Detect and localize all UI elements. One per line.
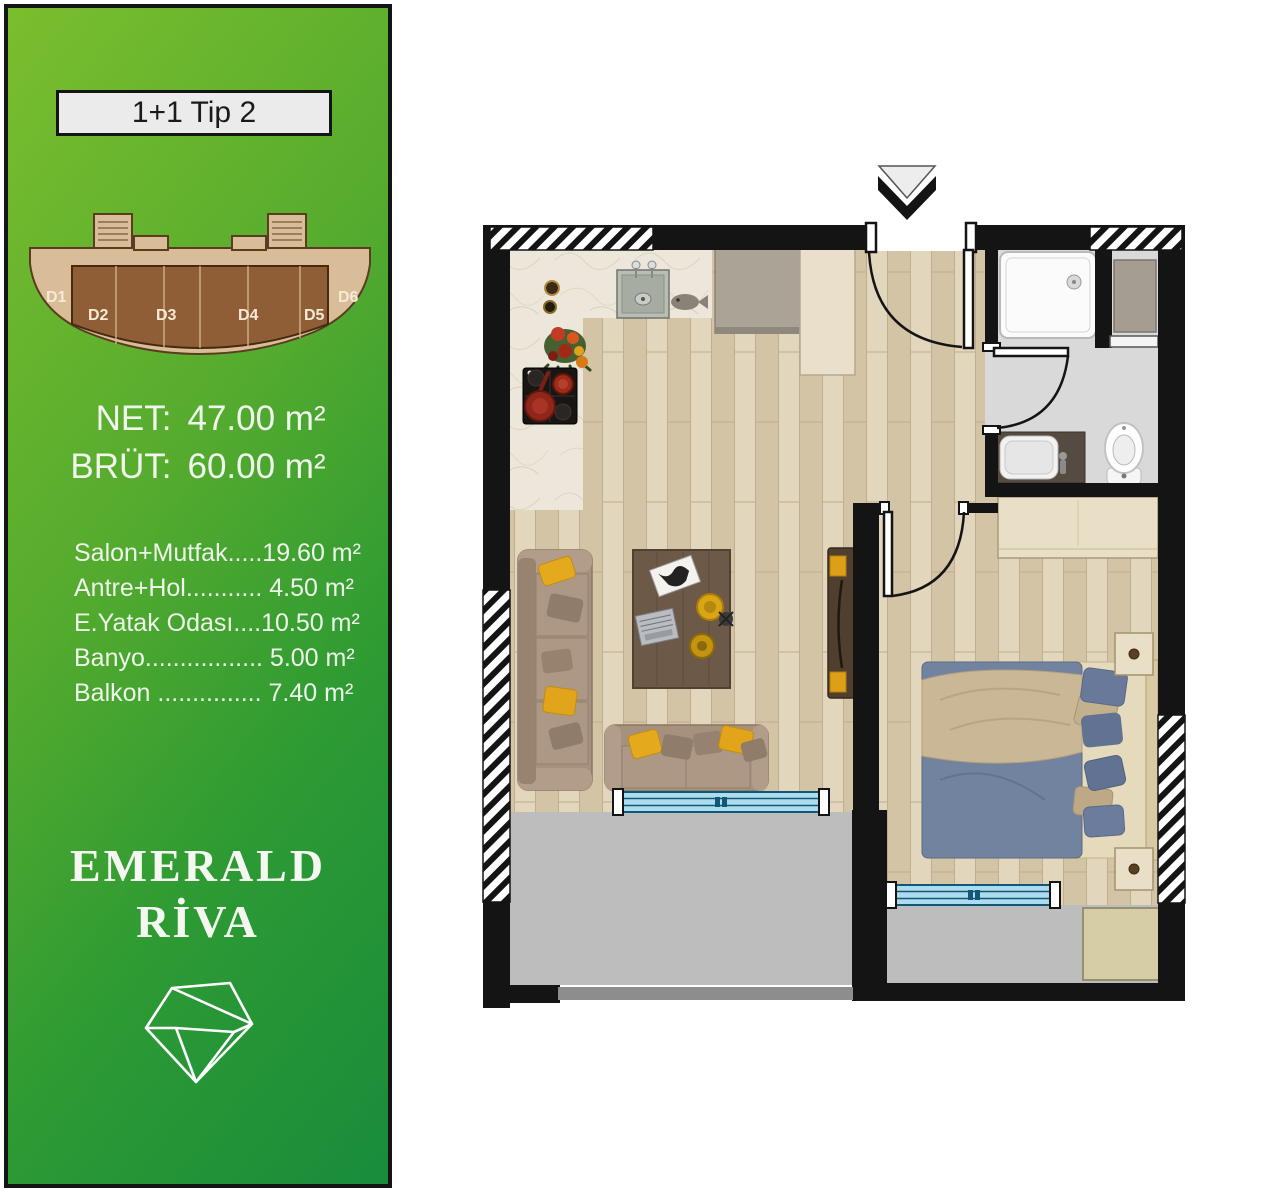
keyplan-unit-d6: D6 xyxy=(338,289,359,306)
keyplan-unit-d2: D2 xyxy=(88,307,109,324)
building-keyplan: D1 D2 D3 D4 D5 D6 xyxy=(16,206,384,368)
net-label: NET: xyxy=(70,398,171,440)
room-row-yatak: E.Yatak Odası....10.50 m² xyxy=(74,606,384,641)
brut-value: 60.00 m² xyxy=(188,446,326,488)
yellow-pillow xyxy=(542,686,577,716)
blanket xyxy=(922,670,1082,763)
brand-line2: RİVA xyxy=(8,894,388,950)
vanity-sink xyxy=(993,432,1085,483)
balcony-mat xyxy=(1083,908,1159,980)
stove xyxy=(523,368,577,424)
nightstand xyxy=(1115,633,1153,675)
room-row-salon: Salon+Mutfak.....19.60 m² xyxy=(74,536,384,571)
salon-window xyxy=(613,789,829,815)
balcony-edge xyxy=(558,987,853,1000)
brand-line1: EMERALD xyxy=(8,838,388,894)
room-row-balkon: Balkon ............... 7.40 m² xyxy=(74,676,384,711)
tv-console xyxy=(828,548,855,698)
shower-tray xyxy=(1000,252,1096,338)
pillow xyxy=(1080,712,1123,748)
bedroom-window xyxy=(886,882,1060,908)
wardrobe xyxy=(998,497,1158,558)
table-decor xyxy=(719,612,733,626)
entry-arrow-icon xyxy=(878,166,936,220)
unit-type-badge: 1+1 Tip 2 xyxy=(56,90,332,136)
keyplan-unit-d3: D3 xyxy=(156,307,177,324)
shower-partition-wall xyxy=(1095,248,1112,348)
area-summary: NET: 47.00 m² BRÜT: 60.00 m² xyxy=(8,398,388,488)
pillow xyxy=(1083,805,1125,838)
kitchen-sink xyxy=(617,261,669,318)
sofa-long xyxy=(518,550,592,790)
keyplan-unit-d4: D4 xyxy=(238,307,259,324)
room-area-list: Salon+Mutfak.....19.60 m² Antre+Hol.....… xyxy=(74,536,384,711)
fridge-cabinet xyxy=(715,248,800,334)
nightstand xyxy=(1115,848,1153,890)
hall-cabinet xyxy=(800,248,855,375)
project-brand: EMERALD RİVA xyxy=(8,838,388,950)
room-row-banyo: Banyo................. 5.00 m² xyxy=(74,641,384,676)
keyplan-unit-d1: D1 xyxy=(46,289,67,306)
toilet xyxy=(1105,423,1143,484)
apartment-floorplan xyxy=(470,160,1190,1020)
info-sidebar: 1+1 Tip 2 xyxy=(4,4,392,1188)
salon-balcony xyxy=(510,812,853,985)
headboard xyxy=(1146,660,1158,860)
brut-label: BRÜT: xyxy=(70,446,171,488)
room-row-antre: Antre+Hol........... 4.50 m² xyxy=(74,571,384,606)
brochure-page: 1+1 Tip 2 xyxy=(0,0,1280,1192)
coffee-table xyxy=(633,550,733,688)
double-bed xyxy=(922,660,1158,860)
diamond-outline-icon xyxy=(138,976,258,1088)
keyplan-unit-d5: D5 xyxy=(304,307,325,324)
sofa-short xyxy=(605,725,768,791)
net-value: 47.00 m² xyxy=(188,398,326,440)
unit-type-label: 1+1 Tip 2 xyxy=(132,96,256,130)
